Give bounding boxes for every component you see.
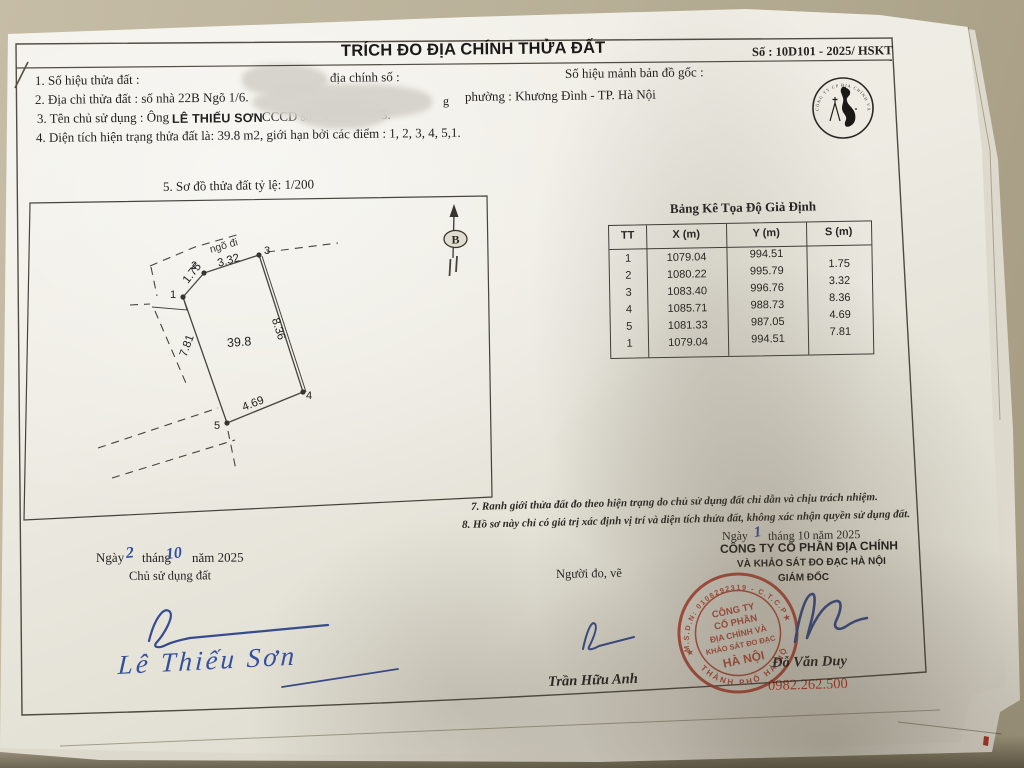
col-header-y: Y (m): [726, 227, 806, 240]
left-date-pre: Ngày: [96, 551, 124, 566]
director-name: Đỗ Văn Duy: [772, 653, 847, 672]
parcel-area-label: 39.8: [226, 334, 251, 350]
field-address: 2. Địa chỉ thửa đất : số nhà 22B Ngõ 1/6…: [35, 90, 249, 108]
handwritten-month-left: 10: [165, 544, 183, 564]
table-cell: 1079.04: [648, 336, 728, 349]
table-cell: 1085.71: [647, 302, 727, 315]
vertex-label-5: 5: [214, 420, 220, 433]
table-cell: 994.51: [726, 248, 806, 261]
table-cell: 987.05: [728, 316, 808, 329]
table-cell: 1: [609, 252, 646, 265]
field-owner-label: 3. Tên chủ sử dụng : Ông: [37, 110, 169, 127]
field-map-sheet: Số hiệu mảnh bản đồ gốc :: [565, 65, 704, 82]
vertex-label-4: 4: [306, 390, 312, 403]
owner-role: Chủ sử dụng đất: [129, 568, 211, 583]
table-cell: 1: [611, 337, 648, 350]
table-s-value: 7.81: [808, 325, 873, 338]
document-title: TRÍCH ĐO ĐỊA CHÍNH THỬA ĐẤT: [341, 39, 606, 61]
surveyor-role: Người đo, vẽ: [556, 566, 622, 582]
col-header-s: S (m): [806, 225, 871, 238]
field-parcel-number: 1. Số hiệu thửa đất :: [35, 73, 140, 89]
field-address-fragment: g: [443, 95, 449, 109]
vertex-label-2: 2: [191, 260, 197, 273]
table-s-value: 1.75: [807, 257, 872, 270]
vertex-label-3: 3: [264, 245, 270, 258]
table-cell: 1081.33: [648, 319, 728, 332]
left-date-year: năm 2025: [192, 551, 244, 566]
table-cell: 994.51: [728, 333, 808, 346]
director-phone: 0982.262.500: [768, 676, 848, 695]
table-cell: 5: [611, 320, 648, 333]
table-cell: 1083.40: [647, 285, 727, 298]
field-ward: phường : Khương Đình - TP. Hà Nội: [465, 88, 656, 105]
table-cell: 3: [610, 286, 647, 299]
surveyor-name: Trần Hữu Anh: [548, 671, 638, 691]
table-cell: 4: [610, 303, 647, 316]
director-title: GIÁM ĐỐC: [778, 572, 829, 585]
table-s-value: 3.32: [807, 274, 872, 287]
sketch-caption: 5. Sơ đồ thửa đất tỷ lệ: 1/200: [163, 177, 314, 195]
coordinate-table: TT X (m) Y (m) S (m) 1 1079.04 994.51 2 …: [608, 220, 874, 359]
table-cell: 996.76: [727, 282, 807, 295]
owner-name: LÊ THIẾU SƠN: [172, 111, 263, 126]
table-cell: 988.73: [727, 299, 807, 312]
col-header-x: X (m): [646, 228, 726, 241]
redaction-blob: [298, 103, 386, 129]
table-cell: 995.79: [727, 265, 807, 278]
table-s-value: 4.69: [808, 308, 873, 321]
document-number: Số : 10D101 - 2025/ HSKT: [752, 43, 893, 59]
table-s-value: 8.36: [807, 291, 872, 304]
vertex-label-1: 1: [170, 289, 176, 302]
table-cell: 2: [610, 269, 647, 282]
col-header-tt: TT: [609, 229, 646, 242]
table-cell: 1079.04: [646, 251, 726, 264]
coordinate-table-title: Bảng Kê Tọa Độ Giả Định: [670, 199, 816, 216]
table-cell: 1080.22: [647, 268, 727, 281]
